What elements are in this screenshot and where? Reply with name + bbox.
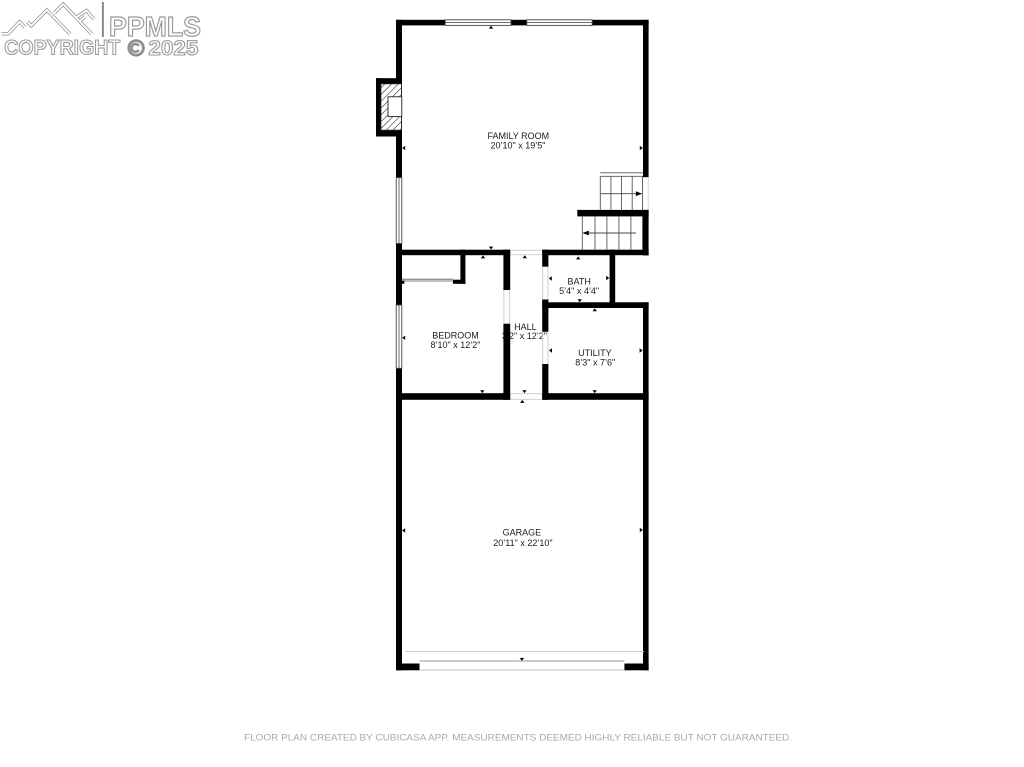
svg-text:2025: 2025 <box>148 36 198 60</box>
svg-text:COPYRIGHT: COPYRIGHT <box>4 37 120 60</box>
svg-text:UTILITY: UTILITY <box>578 348 612 358</box>
svg-text:5’4" x 4’4": 5’4" x 4’4" <box>559 286 599 296</box>
svg-text:FLOOR PLAN CREATED BY CUBICASA: FLOOR PLAN CREATED BY CUBICASA APP. MEAS… <box>244 733 792 744</box>
svg-text:20’10" x 19’5": 20’10" x 19’5" <box>491 140 546 150</box>
svg-text:GARAGE: GARAGE <box>503 528 542 538</box>
svg-text:FAMILY ROOM: FAMILY ROOM <box>487 131 549 141</box>
svg-text:8’3" x 7’6": 8’3" x 7’6" <box>575 358 615 368</box>
svg-text:20’11" x 22’10": 20’11" x 22’10" <box>493 538 552 548</box>
svg-text:8’10" x 12’2": 8’10" x 12’2" <box>431 340 481 350</box>
svg-text:BEDROOM: BEDROOM <box>432 330 479 340</box>
